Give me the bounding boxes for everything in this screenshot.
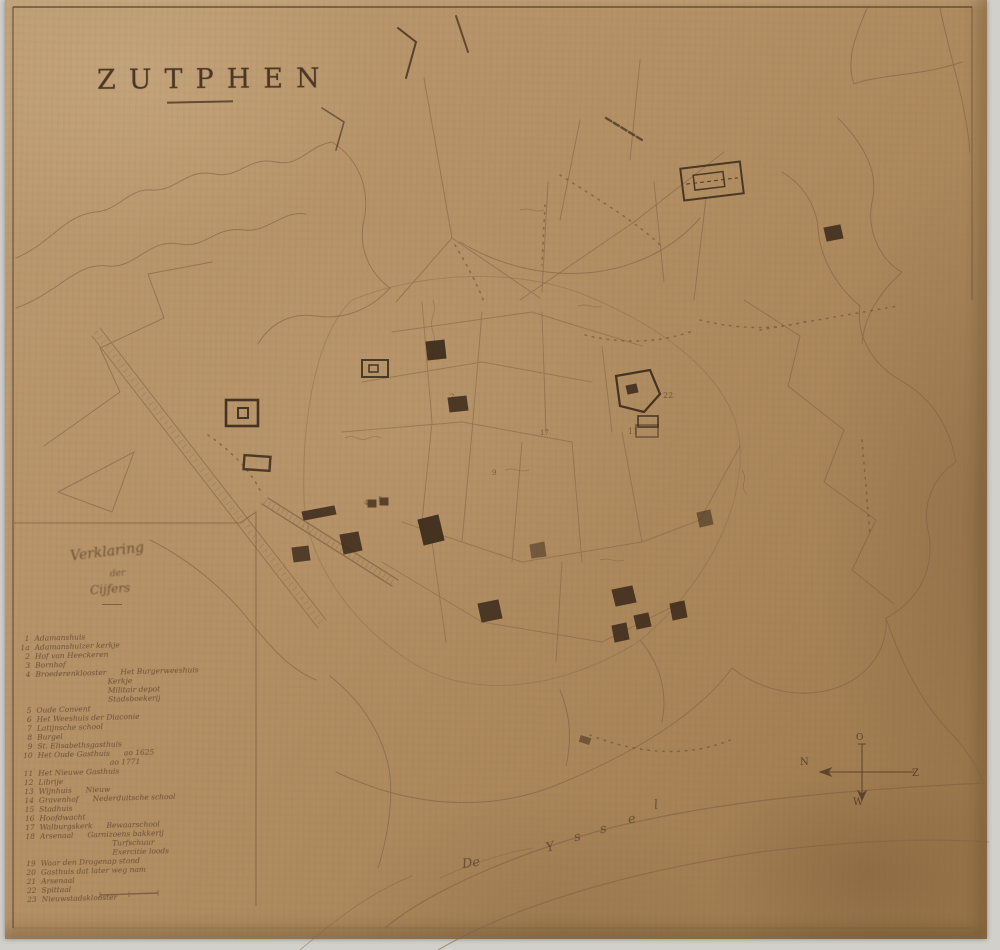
street-name-squiggles: [345, 209, 746, 561]
legend-entry-number: [78, 839, 93, 848]
legend-entry-number: 3: [15, 661, 30, 670]
photo-of-map: { "map": { "title": "ZUTPHEN", "compass"…: [0, 0, 1000, 950]
legend-entry-number: 19: [21, 859, 36, 868]
compass-rose: [820, 744, 914, 800]
legend-entry-number: 1a: [15, 643, 30, 652]
legend-entry-number: [74, 677, 89, 686]
legend-entry-number: 21: [21, 877, 36, 886]
legend-entry-number: 16: [19, 814, 34, 823]
dark-roads: [322, 16, 642, 150]
legend-entry-number: 23: [22, 895, 37, 904]
legend-entry-number: 15: [19, 805, 34, 814]
legend-entry-number: [76, 758, 91, 767]
legend-entry-number: 12: [18, 778, 33, 787]
legend-entry-number: 9: [17, 742, 32, 751]
legend-entry-number: 14: [19, 796, 34, 805]
legend-entry-number: 13: [19, 787, 34, 796]
legend-entry-number: 10: [18, 751, 33, 760]
legend-entry-number: 7: [17, 724, 32, 733]
legend-title-line3: Cijfers: [90, 581, 131, 598]
legend-entry-number: [74, 686, 89, 695]
legend-entry-number: 20: [21, 868, 36, 877]
legend-entry-number: 22: [21, 886, 36, 895]
legend-entry-number: [78, 848, 93, 857]
legend-entry-number: [74, 695, 89, 704]
map-title: ZUTPHEN: [97, 63, 333, 96]
legend-entry-number: 2: [15, 652, 30, 661]
legend-entry-number: 8: [17, 733, 32, 742]
legend-entry-number: 11: [18, 769, 33, 778]
buildings: [226, 161, 843, 744]
legend-entries: 1Adamanshuis1aAdamanshuizer kerkje2Hof v…: [14, 628, 259, 905]
legend-box: Verklaring der Cijfers 1Adamanshuis1aAda…: [14, 520, 258, 912]
north-roads: [396, 60, 724, 302]
legend-title-line1: Verklaring: [69, 540, 145, 565]
gate-tower-building: [226, 400, 258, 426]
river-yssel-banks: [300, 783, 988, 950]
legend-entry-number: 1: [14, 634, 29, 643]
legend-title-underline: [102, 604, 122, 605]
legend-entry-number: 5: [16, 706, 31, 715]
legend-entry-number: 18: [20, 832, 35, 841]
barracks-building: [680, 161, 743, 200]
tower-building: [426, 340, 446, 360]
legend-title-line2: der: [110, 568, 126, 579]
legend-entry-number: 4: [15, 670, 30, 679]
legend-entry-number: 17: [20, 823, 35, 832]
legend-entry-number: 6: [17, 715, 32, 724]
tree-rows-dotted: [208, 175, 898, 751]
legend-entry-text: Nieuwstadsklooster: [42, 893, 118, 904]
